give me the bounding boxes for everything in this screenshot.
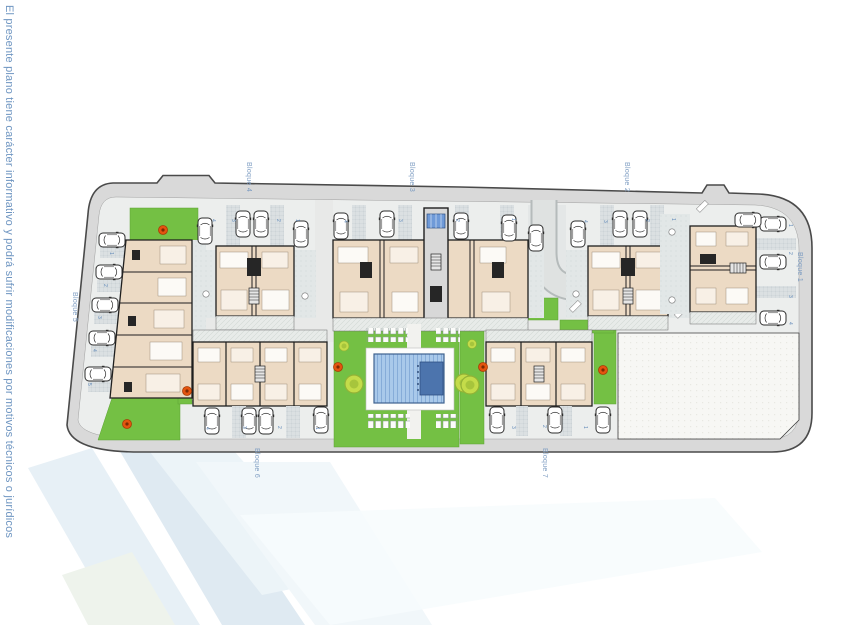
label-bloque-6: Bloque 6 — [253, 448, 260, 478]
car-icon — [612, 211, 628, 237]
stairs-icon — [255, 366, 265, 382]
tree-icon — [159, 226, 168, 235]
tree-icon — [345, 375, 363, 393]
tree-icon — [183, 387, 192, 396]
stairs-icon — [431, 254, 441, 270]
bloque-3-building — [333, 205, 544, 331]
unit-number: 2 — [454, 219, 460, 222]
unit-number: 1 — [108, 252, 114, 255]
car-icon — [735, 212, 761, 228]
label-bloque-3: Bloque 3 — [408, 162, 415, 192]
unit-number: 2 — [276, 426, 282, 429]
tree-icon — [468, 340, 477, 349]
sunloungers — [436, 414, 458, 428]
tree-icon — [123, 420, 132, 429]
unit-number: 1 — [670, 218, 676, 221]
sunloungers — [436, 328, 460, 342]
sunloungers — [368, 414, 410, 428]
patio-table — [669, 297, 675, 303]
car-icon — [197, 218, 213, 244]
bloque-5-building — [85, 232, 206, 400]
patio-table — [573, 291, 579, 297]
tree-icon — [339, 341, 349, 351]
disclaimer-text: El presente plano tiene carácter informa… — [3, 5, 15, 623]
car-icon — [92, 297, 118, 313]
stairs-icon — [249, 288, 259, 304]
unit-number: 3 — [241, 426, 247, 429]
unit-number: 2 — [541, 425, 547, 428]
unit-number: 3 — [96, 316, 102, 319]
stairs-icon — [623, 288, 633, 304]
walkway — [407, 324, 421, 350]
unit-number: 3 — [397, 219, 403, 222]
unit-number: 2 — [787, 252, 793, 255]
sunloungers — [366, 328, 408, 342]
watermark-shapes — [28, 448, 762, 625]
car-icon — [85, 366, 111, 382]
car-icon — [489, 407, 505, 433]
car-icon — [235, 211, 251, 237]
tree-icon — [461, 376, 479, 394]
pool-deep-end — [420, 362, 443, 395]
car-icon — [453, 213, 469, 239]
label-bloque-1: Bloque 1 — [796, 252, 803, 282]
unit-number: 1 — [582, 426, 588, 429]
stairs-icon — [534, 366, 544, 382]
label-bloque-5: Bloque 5 — [71, 292, 78, 322]
unit-number: 3 — [230, 219, 236, 222]
car-icon — [760, 310, 786, 326]
unit-number: 1 — [314, 427, 320, 430]
car-icon — [96, 264, 122, 280]
site-plan-svg: 4321432143211234123454321321 — [0, 0, 851, 625]
car-icon — [632, 211, 648, 237]
site-plan-page: 4321432143211234123454321321 El presente… — [0, 0, 851, 625]
unit-number: 4 — [91, 349, 97, 352]
car-icon — [204, 408, 220, 434]
car-icon — [333, 213, 349, 239]
patio-table — [203, 291, 209, 297]
unit-number: 3 — [602, 220, 608, 223]
unit-number: 1 — [787, 224, 793, 227]
unit-number: 1 — [510, 218, 516, 221]
car-icon — [89, 330, 115, 346]
tree-icon — [479, 363, 488, 372]
label-bloque-4: Bloque 4 — [245, 162, 252, 192]
car-icon — [253, 211, 269, 237]
unit-number: 3 — [787, 295, 793, 298]
tree-icon — [599, 366, 608, 375]
unit-number: 4 — [210, 219, 216, 222]
car-icon — [241, 408, 257, 434]
patio-table — [669, 229, 675, 235]
unit-number: 5 — [86, 383, 92, 386]
label-bloque-2: Bloque 2 — [623, 162, 630, 192]
tree-icon — [334, 363, 343, 372]
car-icon — [528, 225, 544, 251]
street-vertical-1 — [315, 200, 333, 320]
patio-table — [302, 293, 308, 299]
car-icon — [595, 407, 611, 433]
car-icon — [570, 221, 586, 247]
unit-number: 2 — [102, 284, 108, 287]
car-icon — [379, 211, 395, 237]
car-icon — [258, 408, 274, 434]
unit-number: 4 — [204, 427, 210, 430]
label-bloque-7: Bloque 7 — [541, 448, 548, 478]
car-icon — [760, 216, 786, 232]
unit-number: 1 — [294, 219, 300, 222]
car-icon — [99, 232, 125, 248]
car-icon — [760, 254, 786, 270]
unit-number: 3 — [510, 426, 516, 429]
stairs-icon — [730, 263, 746, 273]
unit-number: 4 — [342, 220, 348, 223]
car-icon — [293, 221, 309, 247]
unit-number: 2 — [644, 219, 650, 222]
unit-number: 4 — [582, 220, 588, 223]
plaza — [618, 333, 799, 439]
unit-number: 2 — [275, 219, 281, 222]
lawn-bottom-left — [98, 398, 180, 440]
car-icon — [547, 407, 563, 433]
unit-number: 4 — [787, 322, 793, 325]
